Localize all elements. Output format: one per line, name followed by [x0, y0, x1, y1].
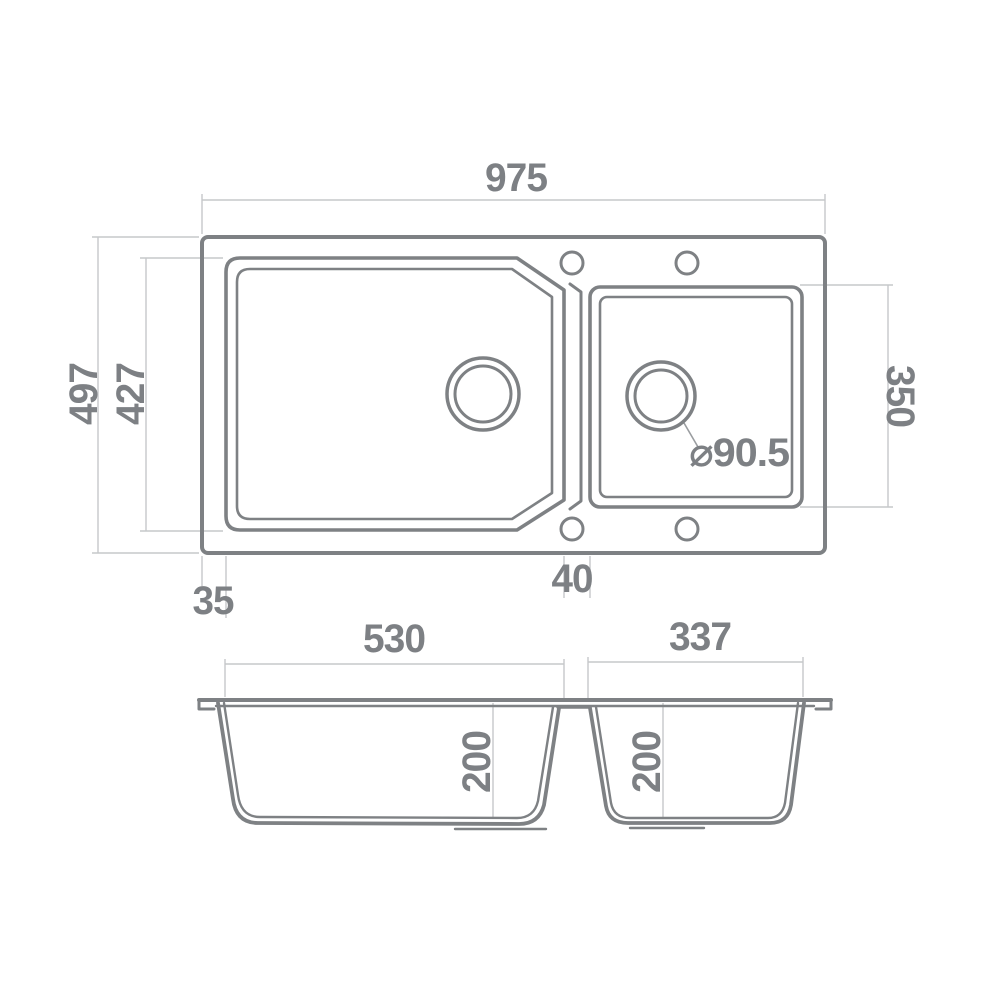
dim-main-bowl-height-label: 200: [455, 731, 499, 793]
dim-overall-depth-label: 497: [62, 363, 106, 425]
mounting-hole-bottom-right: [676, 518, 698, 540]
outlines: [199, 237, 831, 829]
dim-main-bowl-depth-label: 427: [109, 363, 153, 425]
dim-overall-width-label: 975: [485, 156, 548, 200]
mounting-hole-top-right: [676, 252, 698, 274]
top-view: [202, 237, 825, 553]
right-bowl-drain-inner: [635, 370, 687, 422]
main-bowl-inner-contour: [237, 269, 552, 519]
dim-right-bowl-height-label: 200: [625, 731, 669, 793]
front-view: [199, 700, 831, 829]
main-bowl-profile-inner: [224, 703, 553, 818]
dim-right-bowl-length-label: 350: [878, 365, 922, 427]
main-bowl-drain-inner: [455, 366, 511, 422]
mounting-hole-top-left: [561, 252, 583, 274]
drain-diameter-label: ⌀90.5: [689, 431, 790, 475]
dim-right-bowl-width-lines: [588, 657, 803, 701]
mounting-hole-bottom-left: [561, 518, 583, 540]
divider-ridge-line: [570, 284, 581, 509]
main-bowl-profile-outer: [218, 703, 559, 824]
dim-main-bowl-width-label: 530: [363, 617, 425, 661]
dim-overall-width-lines: [202, 194, 825, 234]
main-bowl-drain-outer: [447, 358, 519, 430]
dim-right-bowl-width-label: 337: [669, 615, 731, 659]
technical-drawing-canvas: 975 497 427 350 35 40 ⌀90.5 530 337 200 …: [0, 0, 1000, 1000]
sink-drawing-svg: 975 497 427 350 35 40 ⌀90.5 530 337 200 …: [0, 0, 1000, 1000]
right-bowl-profile-outer: [590, 703, 804, 823]
dim-divider-gap-label: 40: [552, 557, 593, 601]
main-bowl-outer-contour: [226, 258, 564, 530]
dim-main-bowl-width-lines: [225, 659, 564, 701]
right-bowl-drain-outer: [627, 362, 695, 430]
dim-edge-offset-label: 35: [193, 579, 235, 623]
